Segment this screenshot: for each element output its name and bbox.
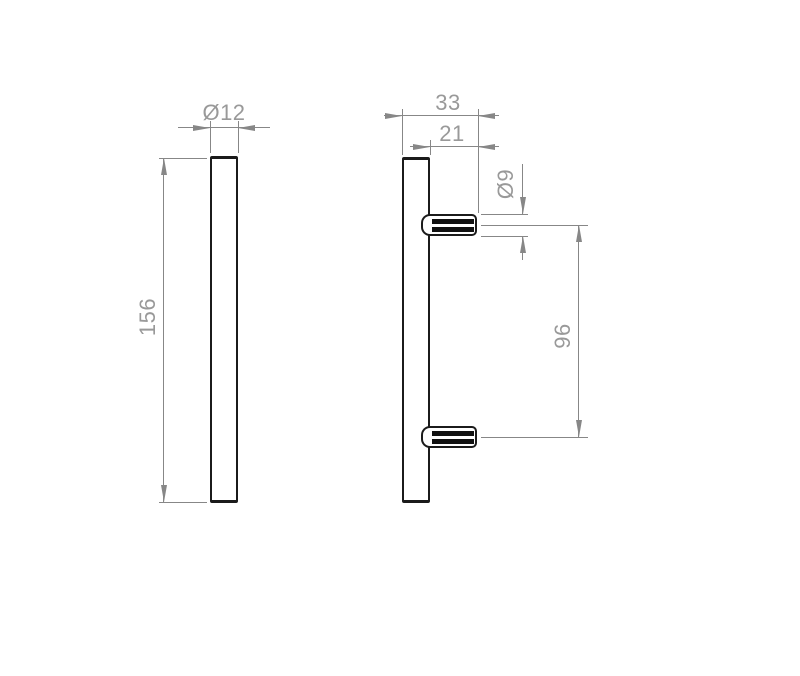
extension-line — [481, 225, 588, 226]
extension-line — [481, 214, 528, 215]
side-view-bar — [402, 157, 430, 503]
arrowhead-left-icon — [478, 144, 495, 150]
dim-label-length156: 156 — [137, 298, 159, 336]
thread-line — [432, 431, 474, 436]
arrowhead-left-icon — [478, 113, 495, 119]
arrowhead-up-icon — [576, 225, 582, 242]
bottom-stud-root-arc — [421, 426, 430, 448]
extension-line — [478, 109, 479, 213]
dim-label-stud21: 21 — [439, 123, 464, 145]
thread-line — [432, 439, 474, 444]
arrowhead-down-icon — [520, 197, 526, 214]
arrowhead-up-icon — [520, 236, 526, 253]
dim-label-diameter9: Ø9 — [495, 169, 517, 199]
extension-line — [430, 140, 431, 155]
thread-line — [432, 219, 474, 224]
arrowhead-down-icon — [576, 420, 582, 437]
dimension-line-diameter12 — [178, 127, 270, 128]
bottom-stud — [430, 426, 477, 448]
technical-drawing-canvas: Ø12 156 33 21 Ø9 96 — [0, 0, 800, 676]
dimension-line-length156 — [163, 158, 164, 502]
arrowhead-up-icon — [161, 158, 167, 175]
arrowhead-down-icon — [161, 485, 167, 502]
dim-label-diameter12: Ø12 — [202, 102, 245, 124]
extension-line — [159, 502, 207, 503]
front-view-bar — [210, 156, 238, 503]
top-stud-root-arc — [421, 214, 430, 236]
dimension-line-centres96 — [578, 225, 579, 437]
dim-label-depth33: 33 — [435, 92, 460, 114]
arrowhead-right-icon — [385, 113, 402, 119]
dim-label-centres96: 96 — [552, 323, 574, 348]
arrowhead-right-icon — [413, 144, 430, 150]
extension-line — [481, 437, 588, 438]
arrowhead-left-icon — [238, 125, 255, 131]
extension-line — [210, 121, 211, 153]
top-stud — [430, 214, 477, 236]
arrowhead-right-icon — [193, 125, 210, 131]
thread-line — [432, 227, 474, 232]
